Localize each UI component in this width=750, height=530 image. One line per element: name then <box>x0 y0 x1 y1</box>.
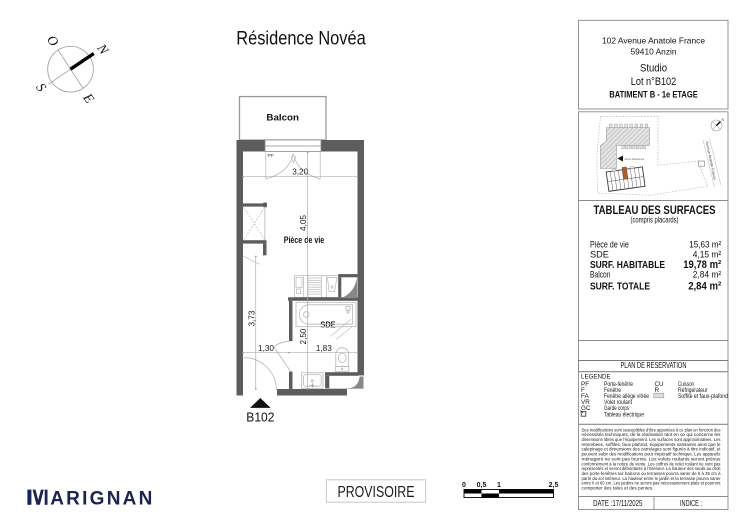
svg-text:B102: B102 <box>246 409 274 424</box>
svg-text:DATE :17/11/2025: DATE :17/11/2025 <box>593 499 643 508</box>
svg-text:3,73: 3,73 <box>247 310 256 326</box>
svg-text:PLAN DE RESERVATION: PLAN DE RESERVATION <box>621 361 687 370</box>
svg-text:Studio: Studio <box>640 63 667 75</box>
svg-text:PROVISOIRE: PROVISOIRE <box>338 484 415 501</box>
svg-text:Lot n°B102: Lot n°B102 <box>631 76 677 88</box>
svg-text:2,5: 2,5 <box>549 482 559 489</box>
svg-text:102 Avenue Anatole France: 102 Avenue Anatole France <box>602 35 705 45</box>
svg-text:Balcon: Balcon <box>266 113 299 124</box>
svg-text:Pièce de vie: Pièce de vie <box>590 239 629 249</box>
svg-text:1,30: 1,30 <box>258 344 274 353</box>
svg-text:(compris placards): (compris placards) <box>631 215 679 224</box>
svg-text:2,84 m²: 2,84 m² <box>688 280 721 292</box>
svg-text:0: 0 <box>462 482 466 489</box>
svg-text:0,5: 0,5 <box>477 482 487 489</box>
svg-text:SDE: SDE <box>320 320 336 329</box>
svg-text:SDE: SDE <box>590 250 609 260</box>
svg-text:comporter des talus et des pen: comporter des talus et des pentes. <box>582 486 654 491</box>
svg-text:Balcon: Balcon <box>590 269 611 279</box>
svg-text:2,84 m²: 2,84 m² <box>693 269 722 279</box>
svg-text:Soffite et faux-plafond: Soffite et faux-plafond <box>678 393 728 400</box>
svg-text:ARIGNAN: ARIGNAN <box>50 489 154 510</box>
svg-text:2,50: 2,50 <box>299 328 308 344</box>
svg-text:SURF. TOTALE: SURF. TOTALE <box>590 281 650 292</box>
svg-text:15,63 m²: 15,63 m² <box>689 239 721 249</box>
svg-text:BATIMENT B - 1e ETAGE: BATIMENT B - 1e ETAGE <box>609 90 698 100</box>
svg-text:1,83: 1,83 <box>316 344 332 353</box>
svg-text:PF: PF <box>268 153 274 159</box>
svg-text:59410 Anzin: 59410 Anzin <box>631 47 677 57</box>
svg-text:INDICE :: INDICE : <box>680 499 702 508</box>
svg-text:1: 1 <box>497 482 501 489</box>
svg-text:3,20: 3,20 <box>292 168 308 177</box>
svg-text:GC: GC <box>581 405 591 412</box>
svg-text:Résidence Novéa: Résidence Novéa <box>236 28 366 50</box>
svg-text:Tableau électrique: Tableau électrique <box>604 412 644 419</box>
svg-text:LEGENDE: LEGENDE <box>581 373 611 380</box>
svg-text:accès Résidence: accès Résidence <box>625 157 645 161</box>
svg-text:4,05: 4,05 <box>299 215 308 231</box>
svg-text:Pièce de vie: Pièce de vie <box>284 235 325 245</box>
